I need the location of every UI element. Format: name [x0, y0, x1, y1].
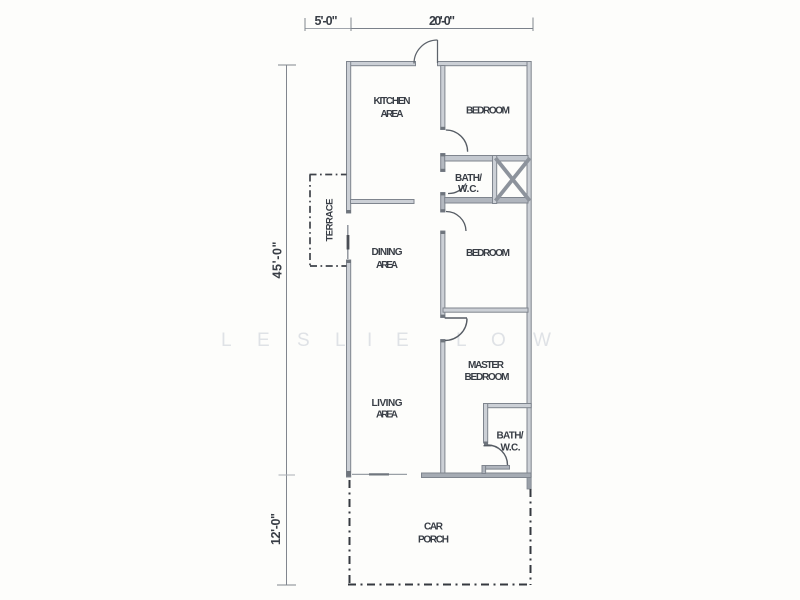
svg-text:BATH/: BATH/	[455, 173, 482, 184]
svg-text:LIVING: LIVING	[372, 398, 403, 409]
svg-text:W.C.: W.C.	[458, 184, 479, 195]
svg-text:BEDROOM: BEDROOM	[465, 372, 510, 383]
svg-text:TERRACE: TERRACE	[325, 199, 336, 242]
svg-text:BATH/: BATH/	[497, 431, 524, 442]
svg-text:12'-0": 12'-0"	[269, 513, 283, 545]
svg-text:20'-0": 20'-0"	[429, 14, 455, 28]
svg-text:DINING: DINING	[372, 247, 403, 258]
svg-text:W.C.: W.C.	[501, 443, 521, 454]
svg-text:BEDROOM: BEDROOM	[466, 248, 510, 259]
svg-text:AREA: AREA	[376, 260, 398, 271]
svg-text:AREA: AREA	[376, 410, 398, 421]
svg-text:AREA: AREA	[381, 109, 404, 120]
svg-text:KITCHEN: KITCHEN	[374, 96, 411, 107]
svg-text:5'-0": 5'-0"	[315, 14, 338, 28]
svg-text:MASTER: MASTER	[468, 360, 505, 371]
svg-text:CAR: CAR	[424, 522, 444, 533]
svg-text:BEDROOM: BEDROOM	[466, 106, 510, 117]
svg-text:PORCH: PORCH	[418, 535, 449, 546]
svg-text:45'-0": 45'-0"	[271, 241, 285, 278]
